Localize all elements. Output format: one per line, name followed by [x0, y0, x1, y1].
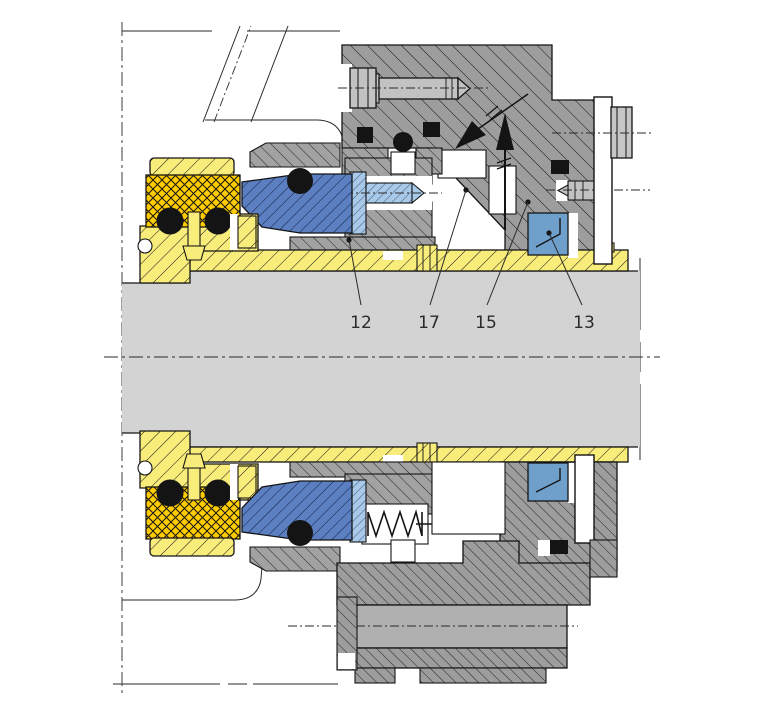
ball-detail: [138, 239, 152, 253]
flange-cap: [150, 158, 234, 176]
gland-bolt-head: [611, 107, 632, 158]
clamp-lower: [340, 648, 567, 668]
retainer-band: [250, 547, 340, 571]
ball-detail: [138, 461, 152, 475]
diagram-canvas: 12 17 15 13: [0, 0, 768, 716]
retainer-band: [250, 143, 340, 167]
face-o-ring: [287, 168, 313, 194]
vent-channel: [489, 166, 516, 214]
clamp-cylinder: [340, 605, 567, 648]
flange-screw: [238, 466, 256, 498]
flange-o-ring: [205, 208, 232, 235]
setting-plate: [575, 455, 594, 543]
seal-cross-section-diagram: 12 17 15 13: [0, 0, 768, 716]
flange-o-ring: [157, 480, 184, 507]
part-label-15: 15: [475, 313, 497, 333]
part-label-17: 17: [418, 313, 440, 333]
sleeve-set-screw: [417, 245, 437, 271]
gland-set-screw: [568, 181, 596, 200]
setting-plate: [594, 97, 612, 264]
flange-o-ring: [157, 208, 184, 235]
part-label-13: 13: [573, 313, 595, 333]
flange-cap: [150, 538, 234, 556]
pilot-ring-section: [528, 463, 568, 501]
chamber-bottom: [432, 462, 505, 534]
o-ring-square: [551, 160, 569, 174]
o-ring-square: [357, 127, 373, 143]
o-ring-square: [550, 540, 568, 554]
oring-pocket: [391, 152, 415, 174]
oring-pocket: [391, 540, 415, 562]
clamp-pin: [188, 212, 200, 246]
shaft: [122, 271, 640, 447]
clamp-pin: [188, 468, 200, 500]
pin-screw-body: [366, 183, 412, 203]
gland-pocket: [438, 150, 486, 178]
face-o-ring: [287, 520, 313, 546]
flange-screw: [238, 216, 256, 248]
o-ring-round: [393, 132, 413, 152]
flange-o-ring: [205, 480, 232, 507]
part-label-12: 12: [350, 313, 372, 333]
o-ring-square: [423, 122, 440, 137]
